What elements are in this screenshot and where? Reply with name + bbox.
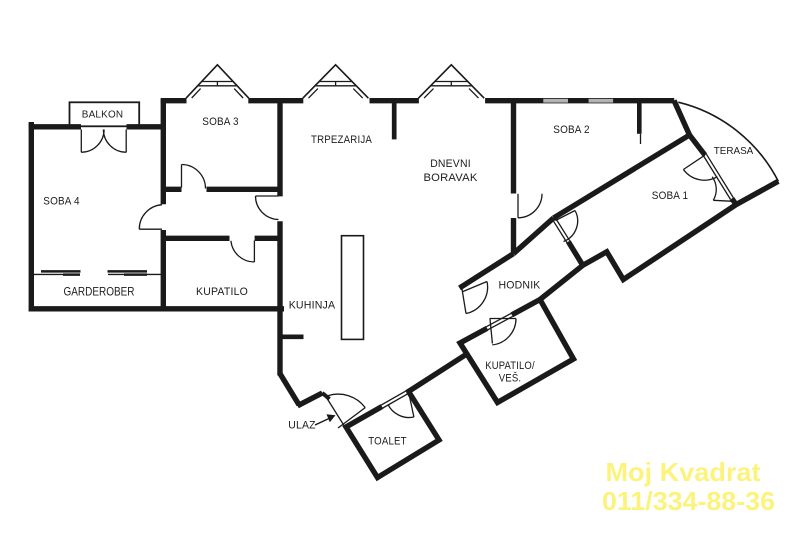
svg-text:KUHINJA: KUHINJA [289, 300, 336, 312]
svg-text:TERASA: TERASA [714, 145, 754, 157]
svg-text:KUPATILO/: KUPATILO/ [485, 360, 535, 372]
svg-text:KUPATILO: KUPATILO [196, 286, 248, 298]
svg-text:TOALET: TOALET [368, 436, 407, 448]
svg-text:VEŠ.: VEŠ. [499, 372, 522, 385]
svg-text:BORAVAK: BORAVAK [424, 172, 478, 184]
svg-text:011/334-88-36: 011/334-88-36 [602, 486, 775, 516]
svg-text:DNEVNI: DNEVNI [430, 158, 471, 170]
svg-text:SOBA 1: SOBA 1 [652, 190, 689, 202]
svg-text:SOBA 4: SOBA 4 [43, 196, 80, 208]
svg-text:ULAZ: ULAZ [288, 420, 316, 432]
svg-text:GARDEROBER: GARDEROBER [64, 285, 135, 299]
svg-text:SOBA 3: SOBA 3 [202, 116, 239, 128]
svg-text:Moj Kvadrat: Moj Kvadrat [606, 457, 761, 487]
svg-text:TRPEZARIJA: TRPEZARIJA [311, 134, 372, 146]
svg-text:SOBA 2: SOBA 2 [553, 124, 590, 136]
svg-text:HODNIK: HODNIK [499, 280, 541, 292]
svg-text:BALKON: BALKON [82, 110, 124, 121]
